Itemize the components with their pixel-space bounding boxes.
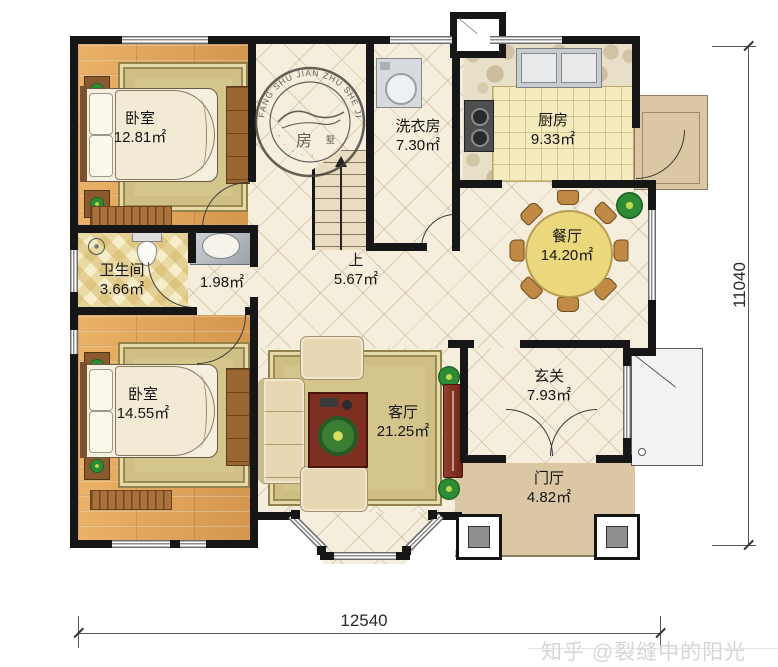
room-area: 7.93㎡ [527,387,571,406]
wardrobe [226,86,250,184]
sofa-single [300,336,364,380]
window [334,552,396,560]
watermark: 知乎 @裂缝中的阳光 [541,636,746,666]
kitchen-sink [516,48,602,88]
porch-pillar [594,514,640,560]
wall [448,340,474,348]
wall [367,243,427,251]
room-name: 厨房 [531,112,575,131]
wall [460,455,506,463]
window [648,210,656,300]
dresser [90,206,172,226]
window [70,250,78,292]
wall [250,225,258,267]
dining-chair [510,240,525,262]
exterior-mask [640,44,648,95]
shower-icon [88,238,105,255]
wall [460,180,502,188]
room-label-living: 客厅 21.25㎡ [377,404,430,442]
washer-drum [385,73,417,105]
wall [317,546,326,555]
window [390,36,452,44]
porch-pillar [456,514,502,560]
washbasin [202,233,240,259]
room-name: 客厅 [377,404,430,423]
room-area: 7.30㎡ [395,137,440,156]
wall [648,188,656,210]
dining-chair [557,297,579,312]
dining-chair [614,240,629,262]
room-name: 玄关 [527,368,571,387]
wall [460,348,468,462]
flower-bouquet [318,416,358,456]
sofa-single [300,466,368,512]
wall [291,510,300,519]
window [112,540,170,548]
room-name: 门厅 [527,470,571,489]
wall [632,36,640,128]
room-label-bedroom-bottom: 卧室 14.55㎡ [117,386,170,424]
room-area: 21.25㎡ [377,423,430,442]
wall [428,510,437,519]
wall [402,546,411,555]
wall [648,300,656,348]
window [490,36,562,44]
wall [552,180,656,188]
terrace-marker [638,448,646,456]
room-name: 卧室 [117,386,170,405]
pillow [89,411,113,453]
tv-screen-line [452,391,454,471]
dimension-height-value: 11040 [730,245,750,325]
designer-stamp: FANG SHU JIAN ZHU SHE JI · · · · · 房 墅 [252,64,368,180]
wall [188,233,196,263]
stairs-direction: 上 [334,252,378,271]
sink-basin [561,53,597,83]
pillow [89,135,113,177]
room-name: 卫生间 [99,262,144,281]
dimension-ext [712,46,756,47]
burner [471,108,489,126]
room-label-stairs: 上 5.67㎡ [334,252,378,290]
sofa-three-seat [258,378,305,484]
svg-text:FANG SHU JIAN ZHU SHE JI: FANG SHU JIAN ZHU SHE JI [256,68,364,119]
room-area: 1.98㎡ [200,274,244,293]
plant-icon [438,478,460,500]
wall [452,36,460,251]
dimension-width-value: 12540 [314,611,414,631]
stove [464,100,494,152]
wall [70,225,256,233]
window [180,540,206,548]
room-label-foyer: 门厅 4.82㎡ [527,470,571,508]
pillar-core [606,526,628,548]
wardrobe [226,368,250,466]
room-label-laundry: 洗衣房 7.30㎡ [395,118,440,156]
table-tray [320,398,338,407]
stamp-ring-text: FANG SHU JIAN ZHU SHE JI [256,68,364,119]
stamp-center-char: 房 [296,132,312,150]
room-area: 9.33㎡ [531,131,575,150]
room-area: 4.82㎡ [527,489,571,508]
wall [70,307,197,315]
room-label-corridor: 1.98㎡ [200,274,244,293]
table-bowl [342,400,352,410]
window [122,36,208,44]
pillow [89,369,113,411]
dimension-line-bottom [78,633,660,634]
room-label-dining: 餐厅 14.20㎡ [541,228,594,266]
room-name: 餐厅 [541,228,594,247]
room-area: 5.67㎡ [334,271,378,290]
room-area: 14.55㎡ [117,405,170,424]
room-area: 14.20㎡ [541,247,594,266]
room-label-bathroom: 卫生间 3.66㎡ [99,262,144,300]
bed-headboard [80,86,87,182]
dining-chair [557,190,579,205]
wall [250,297,258,548]
wall [596,455,632,463]
plant-icon [90,459,104,473]
room-name: 洗衣房 [395,118,440,137]
room-name: 卧室 [114,110,167,129]
wall [623,348,631,366]
room-label-entry: 玄关 7.93㎡ [527,368,571,406]
dimension-ext [712,545,756,546]
pillow [89,93,113,135]
room-label-bedroom-top: 卧室 12.81㎡ [114,110,167,148]
room-area: 3.66㎡ [99,281,144,300]
dresser [90,490,172,510]
stamp-side-char: 墅 [326,135,335,145]
bed-headboard [80,362,87,458]
coffee-table [308,392,368,468]
window [623,366,631,438]
washing-machine [376,58,422,108]
sink-basin [521,53,557,83]
wall [520,340,630,348]
pillar-core [468,526,490,548]
window [70,330,78,354]
burner [471,129,489,147]
washer-panel [380,62,390,70]
plant-icon [616,192,643,219]
room-label-kitchen: 厨房 9.33㎡ [531,112,575,150]
floor-plan: FANG SHU JIAN ZHU SHE JI · · · · · 房 墅 卧… [0,0,778,667]
room-area: 12.81㎡ [114,129,167,148]
wall [70,36,78,548]
